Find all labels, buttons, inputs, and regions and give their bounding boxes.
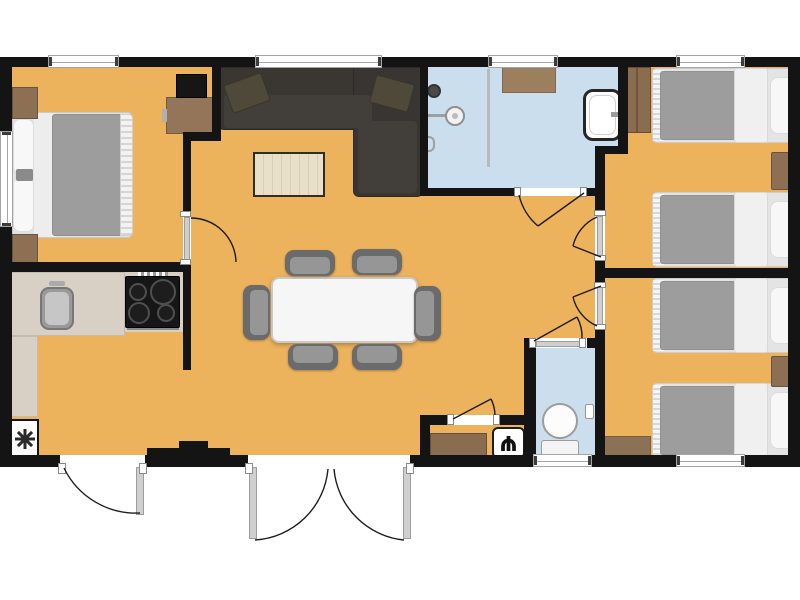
master-bed-pillow-top — [13, 119, 34, 174]
door-jamb-cap-5 — [594, 255, 606, 261]
wall-wc-left — [524, 338, 536, 467]
window-bedroom2-bottom-mullion — [679, 461, 742, 462]
door-arc-french-right — [334, 469, 404, 540]
burner-small-left — [129, 283, 147, 301]
door-leaf-french-left — [249, 467, 257, 539]
bath-mat-shelf — [502, 66, 556, 93]
shower-glass-panel — [487, 69, 490, 167]
window-master-top-endcap — [115, 57, 118, 66]
single-bed-1-blanket — [734, 68, 768, 143]
kitchen-faucet — [49, 281, 65, 286]
dining-chair-bottom-right — [352, 344, 402, 370]
wall-bath-left — [420, 57, 428, 196]
dining-chair-right-seat — [416, 291, 434, 336]
window-bedroom2-bottom — [676, 454, 745, 467]
window-bath-top-endcap — [554, 57, 557, 66]
shower-head-center — [452, 113, 458, 119]
single-bed-3-blanket — [734, 278, 768, 353]
door-jamb-cap-2 — [514, 187, 521, 197]
window-master-top-endcap — [49, 57, 52, 66]
door-jamb-cap-7 — [594, 324, 606, 330]
toilet-bowl — [542, 403, 578, 439]
single-bed-1-duvet — [660, 71, 736, 140]
tv-desk — [166, 97, 213, 134]
water-heater-icon: Ψ — [500, 431, 517, 455]
door-jamb-cap-6 — [594, 282, 606, 288]
window-wc-bottom-mullion — [536, 461, 589, 462]
wall-bath-right — [618, 57, 628, 152]
wall-closet-top-b — [496, 415, 536, 425]
door-jamb-cap-10 — [447, 414, 454, 425]
master-bed-fold — [120, 114, 133, 236]
wall-kitchen-dining — [183, 262, 191, 370]
window-wc-bottom — [533, 454, 592, 467]
window-master-left — [0, 131, 13, 227]
window-bedroom2-bottom-endcap — [741, 456, 744, 465]
dining-chair-left-seat — [250, 290, 268, 335]
door-leaf-bedroom1 — [597, 216, 603, 258]
tv-desk-handle — [162, 109, 167, 122]
entry-step-riser — [179, 441, 208, 449]
master-bed-duvet — [52, 114, 124, 236]
door-jamb-cap-8 — [529, 338, 536, 348]
window-bath-top — [488, 55, 558, 68]
burner-small-right — [157, 304, 175, 322]
dining-chair-top-right-seat — [357, 256, 397, 273]
tv-screen — [176, 74, 207, 98]
shower-drain — [427, 84, 441, 98]
kitchen-sink-basin — [45, 292, 69, 325]
single-bed-4-blanket — [734, 383, 768, 458]
door-arc-french-left — [255, 469, 328, 540]
window-bedroom1-top — [676, 55, 745, 68]
threshold-closet-door — [450, 415, 496, 425]
door-leaf-master — [184, 217, 190, 261]
threshold-entry-door — [60, 455, 145, 467]
door-leaf-wc — [536, 341, 582, 347]
window-wc-bottom-endcap — [534, 456, 537, 465]
window-living-top-mullion — [258, 62, 379, 63]
wall-hall-a — [595, 146, 605, 215]
dining-table — [271, 277, 418, 343]
window-bedroom1-top-endcap — [677, 57, 680, 66]
doormat-bedroom2 — [602, 436, 651, 456]
single-bed-2-blanket — [734, 192, 768, 267]
door-jamb-cap-14 — [245, 463, 253, 474]
wall-masterbed-mid — [183, 132, 191, 215]
single-bed-3-duvet — [660, 281, 736, 350]
dining-chair-bottom-right-seat — [357, 346, 397, 363]
burner-large-right — [150, 279, 176, 305]
window-bedroom1-top-endcap — [741, 57, 744, 66]
door-leaf-french-right — [403, 467, 411, 539]
master-nightstand-top — [12, 87, 38, 119]
window-master-top — [48, 55, 119, 68]
door-jamb-cap-9 — [579, 338, 586, 348]
dining-chair-bottom-left-seat — [293, 346, 333, 363]
window-master-left-endcap — [2, 223, 11, 226]
sofa-seat-chaise — [358, 121, 417, 193]
wall-right — [788, 57, 800, 467]
floor-wc — [536, 348, 595, 455]
dining-chair-right — [414, 286, 441, 341]
entry-step-tread — [147, 448, 230, 458]
wall-masterbed-south — [0, 262, 191, 272]
closet-cabinet — [430, 433, 487, 457]
wall-masterbed-upper-stub — [212, 57, 221, 141]
coffee-table — [253, 152, 325, 197]
window-living-top-endcap — [378, 57, 381, 66]
window-master-left-mullion — [7, 134, 8, 224]
floor-plan-canvas: Ψ — [0, 0, 800, 600]
window-wc-bottom-endcap — [588, 456, 591, 465]
cooktop-rail — [127, 328, 179, 330]
door-jamb-cap-3 — [580, 187, 587, 197]
door-leaf-bedroom2 — [597, 285, 603, 327]
toilet-paper-holder — [585, 404, 594, 419]
window-master-left-endcap — [2, 132, 11, 135]
door-arc-entry — [64, 468, 140, 513]
window-bedroom1-top-mullion — [679, 62, 742, 63]
door-leaf-entry — [136, 467, 144, 515]
wardrobe-divider — [636, 68, 638, 132]
window-master-top-mullion — [51, 62, 116, 63]
window-bath-top-mullion — [491, 62, 555, 63]
wall-closet-top-a — [420, 415, 450, 425]
dining-chair-left — [243, 285, 270, 340]
window-living-top — [255, 55, 382, 68]
wall-wc-top-right — [587, 338, 605, 348]
door-jamb-cap-13 — [139, 463, 147, 474]
door-jamb-cap-1 — [180, 259, 191, 265]
master-bed-pillow-bottom — [13, 177, 34, 232]
boiler-unit — [10, 419, 39, 458]
dining-chair-top-right — [352, 249, 402, 275]
wall-bath-bottom-left — [420, 188, 518, 196]
single-bed-2-duvet — [660, 195, 736, 264]
door-jamb-cap-0 — [180, 211, 191, 217]
threshold-bath-door — [518, 188, 583, 196]
kitchen-counter-left-run — [10, 336, 38, 417]
door-jamb-cap-12 — [58, 463, 66, 474]
dining-chair-bottom-left — [288, 344, 338, 370]
floor-bathroom-lower — [428, 150, 597, 188]
door-jamb-cap-15 — [406, 463, 414, 474]
door-jamb-cap-11 — [493, 414, 500, 425]
door-jamb-cap-4 — [594, 210, 606, 216]
window-bath-top-endcap — [489, 57, 492, 66]
window-living-top-endcap — [256, 57, 259, 66]
dining-chair-top-left — [285, 250, 335, 276]
master-bed-remote — [16, 169, 33, 181]
single-bed-4-duvet — [660, 386, 736, 455]
wall-bedroom-divider — [595, 268, 800, 278]
burner-large-left — [128, 302, 150, 324]
dining-chair-top-left-seat — [290, 257, 330, 274]
threshold-french-doors — [248, 455, 410, 467]
window-bedroom2-bottom-endcap — [677, 456, 680, 465]
